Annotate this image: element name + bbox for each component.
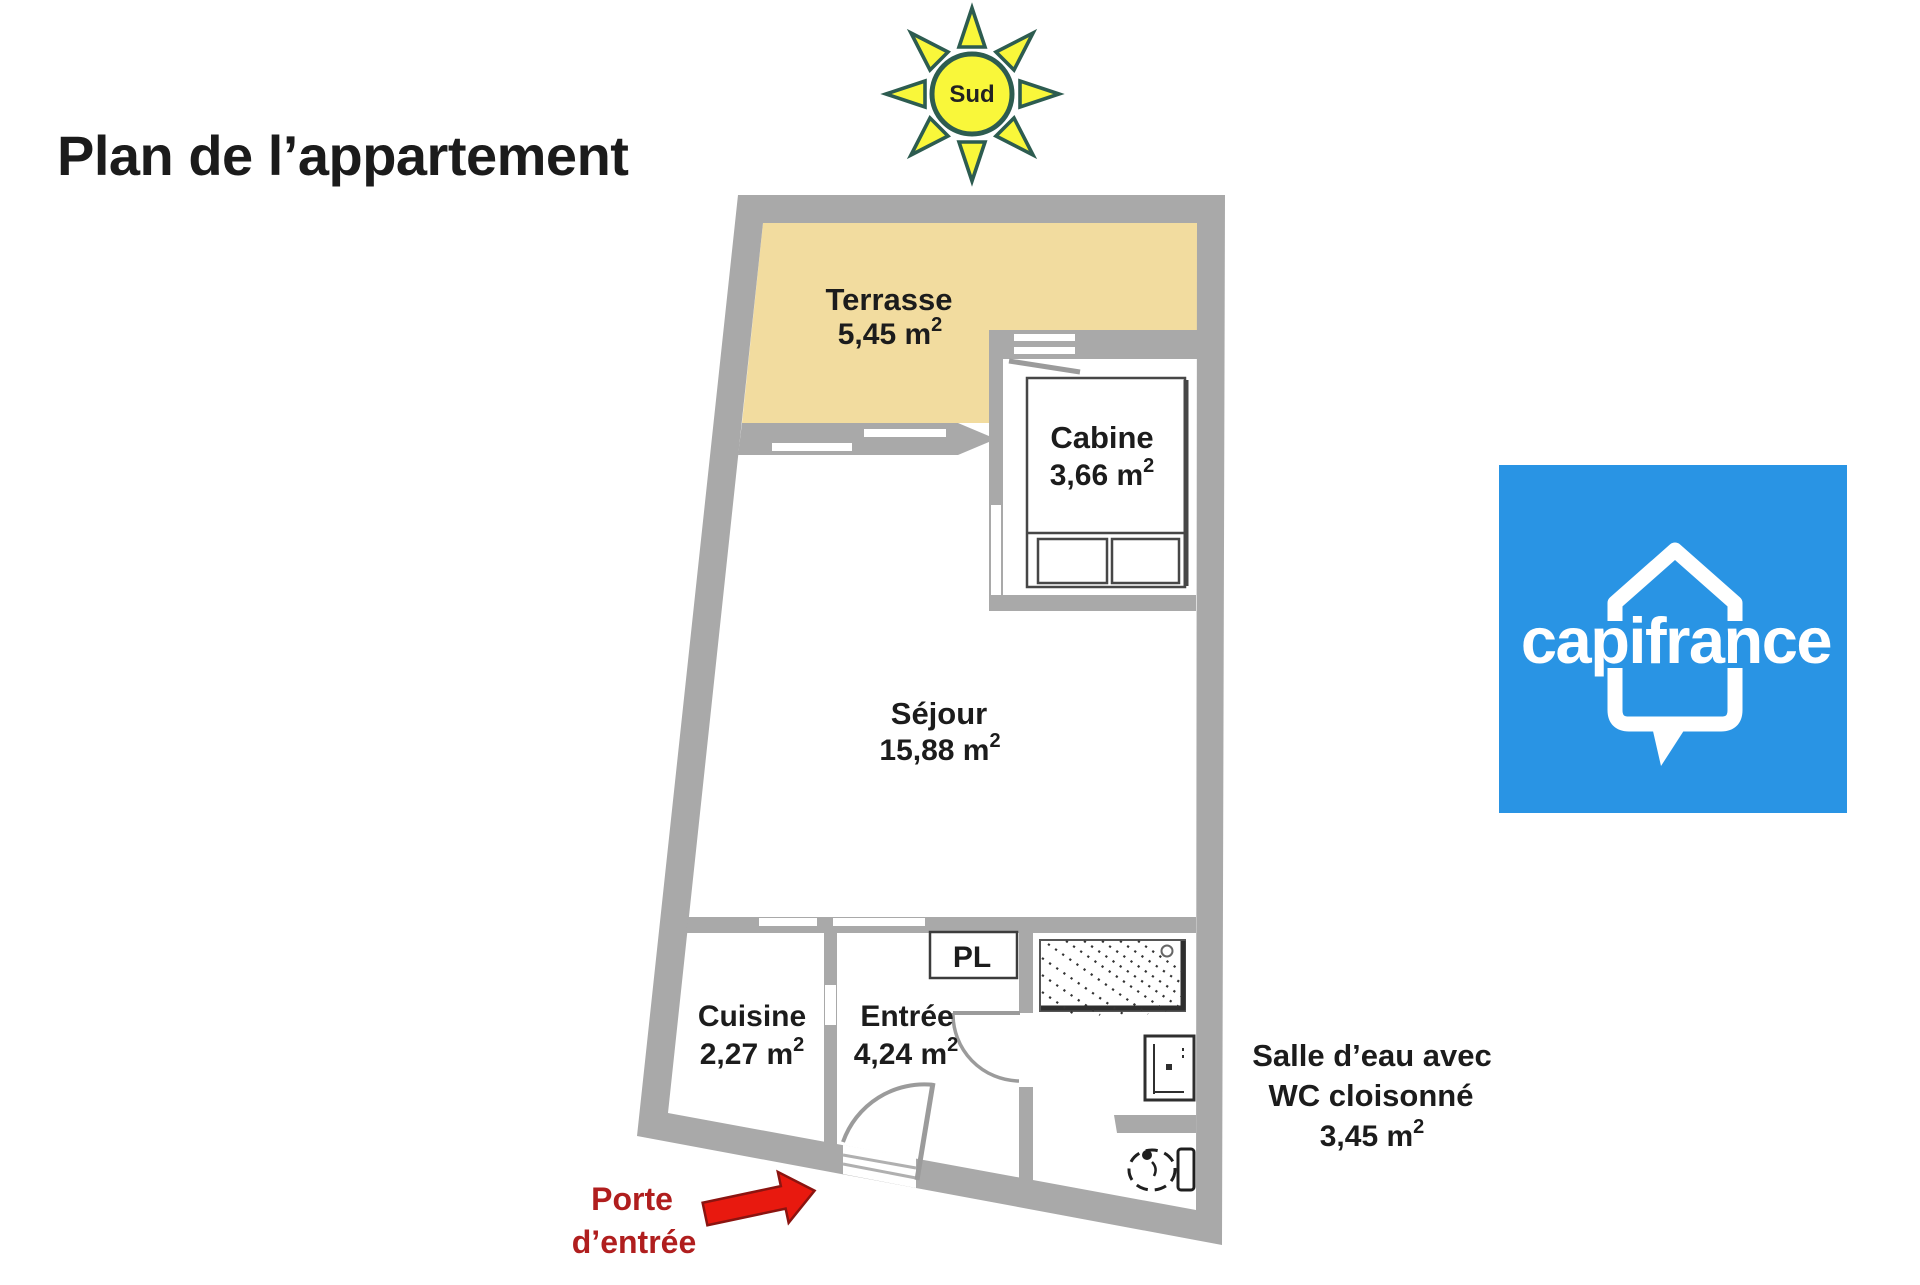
svg-text:Plan de l’appartement: Plan de l’appartement xyxy=(57,124,628,187)
svg-text:Séjour: Séjour xyxy=(891,696,987,731)
svg-text:WC cloisonné: WC cloisonné xyxy=(1269,1078,1474,1113)
svg-text:3,66 m2: 3,66 m2 xyxy=(1050,455,1155,492)
svg-text:4,24 m2: 4,24 m2 xyxy=(854,1034,959,1071)
svg-text:capifrance: capifrance xyxy=(1521,604,1831,677)
svg-text:3,45 m2: 3,45 m2 xyxy=(1320,1116,1425,1153)
svg-text:Cuisine: Cuisine xyxy=(698,1000,806,1033)
svg-text:5,45 m2: 5,45 m2 xyxy=(838,314,943,351)
svg-text:Sud: Sud xyxy=(949,81,994,108)
svg-text:d’entrée: d’entrée xyxy=(572,1224,696,1260)
svg-text:Porte: Porte xyxy=(591,1181,673,1217)
svg-text:2,27 m2: 2,27 m2 xyxy=(700,1034,805,1071)
svg-text:Entrée: Entrée xyxy=(860,1000,953,1033)
svg-text:Terrasse: Terrasse xyxy=(826,282,953,317)
svg-text:Salle d’eau avec: Salle d’eau avec xyxy=(1252,1038,1492,1073)
svg-text:15,88 m2: 15,88 m2 xyxy=(879,730,1000,767)
svg-text:Cabine: Cabine xyxy=(1050,420,1153,455)
svg-text:PL: PL xyxy=(953,941,991,974)
